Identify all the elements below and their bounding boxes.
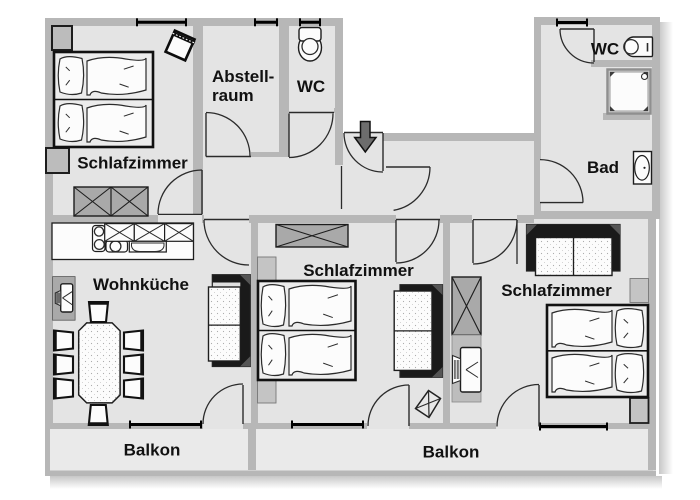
svg-text:Balkon: Balkon [124, 441, 181, 460]
svg-text:WC: WC [591, 40, 619, 59]
svg-text:Wohnküche: Wohnküche [93, 275, 189, 294]
svg-text:WC: WC [297, 77, 325, 96]
svg-text:Bad: Bad [587, 158, 619, 177]
svg-text:raum: raum [212, 86, 254, 105]
svg-text:Balkon: Balkon [423, 443, 480, 462]
svg-text:Schlafzimmer: Schlafzimmer [77, 154, 188, 173]
svg-text:Abstell-: Abstell- [212, 67, 274, 86]
svg-text:Schlafzimmer: Schlafzimmer [303, 261, 414, 280]
svg-text:Schlafzimmer: Schlafzimmer [501, 281, 612, 300]
